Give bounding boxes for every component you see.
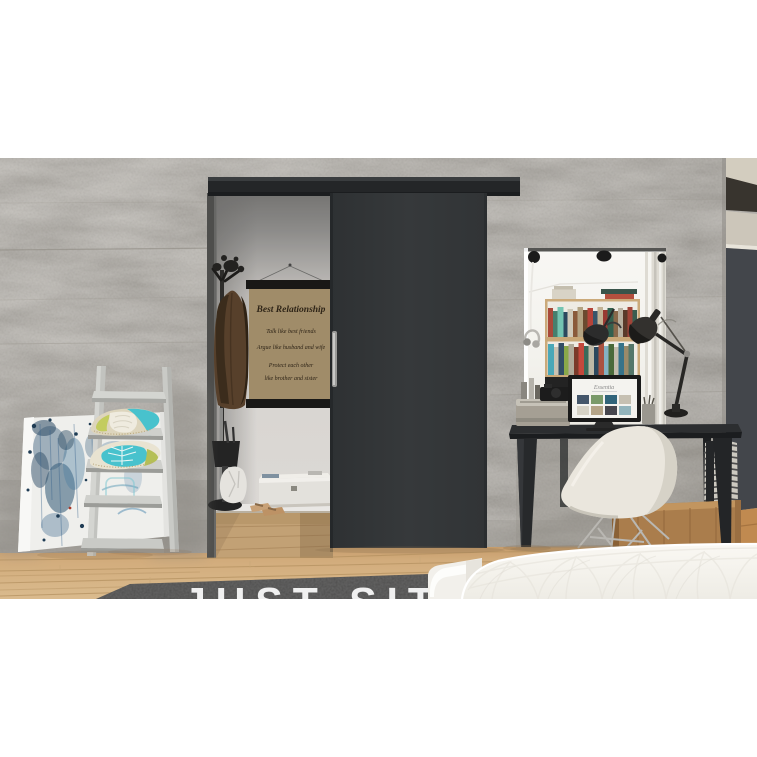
svg-text:Protect each other: Protect each other	[268, 363, 314, 369]
svg-text:Essentia: Essentia	[593, 385, 614, 391]
svg-text:Talk like best friends: Talk like best friends	[266, 328, 316, 335]
svg-text:Best Relationship: Best Relationship	[256, 305, 326, 315]
svg-text:Argue like husband and wife: Argue like husband and wife	[256, 344, 326, 351]
svg-text:like brother and sister: like brother and sister	[265, 376, 319, 382]
